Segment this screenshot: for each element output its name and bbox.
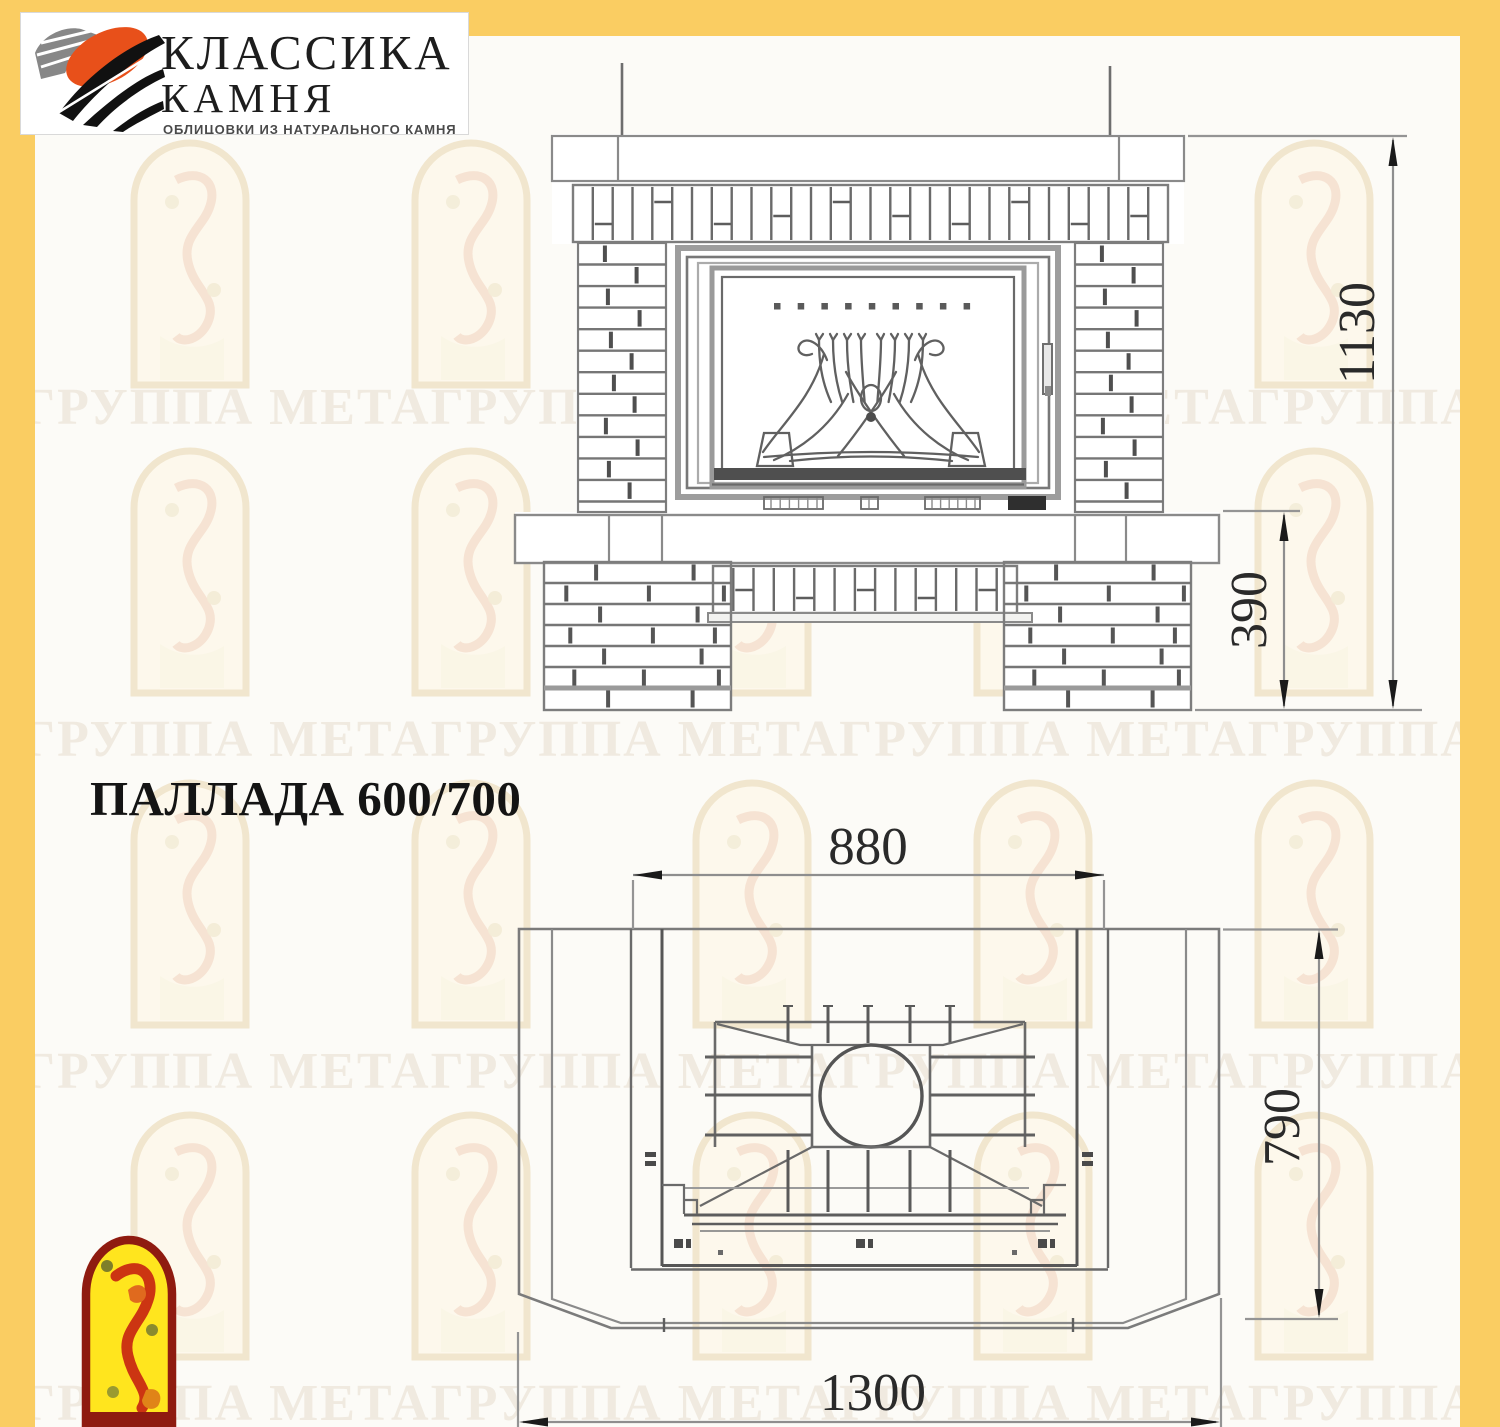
svg-text:1130: 1130 [1329,282,1386,384]
svg-text:390: 390 [1221,571,1278,649]
svg-text:790: 790 [1254,1088,1311,1166]
svg-text:ПАЛЛАДА 600/700: ПАЛЛАДА 600/700 [90,771,521,826]
svg-text:880: 880 [828,818,908,876]
svg-text:1300: 1300 [820,1364,926,1422]
